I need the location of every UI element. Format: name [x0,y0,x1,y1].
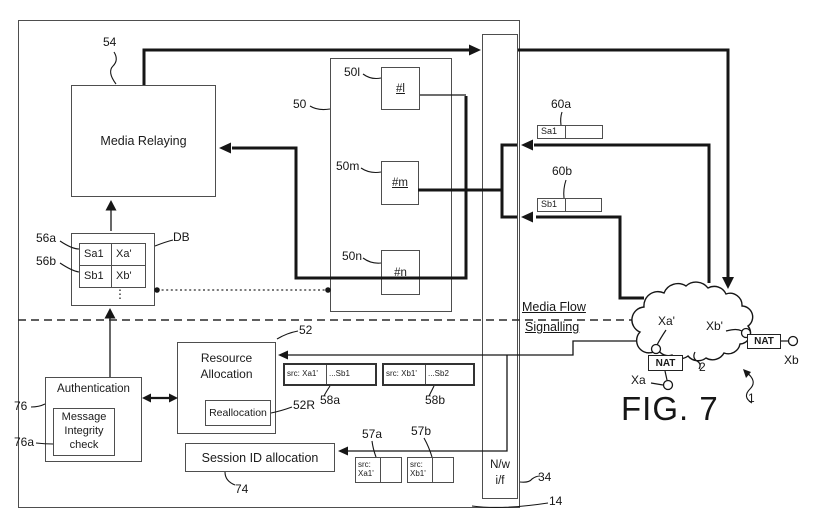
ref-57b: 57b [411,425,431,437]
ref-60b: 60b [552,165,572,177]
packet-60b-payload [566,199,601,211]
nat-a-box: NAT [648,355,683,371]
signalling-plane-label: Signalling [525,321,579,334]
figure-title: FIG. 7 [621,392,719,425]
media-flow-plane-label: Media Flow [522,301,586,314]
ref-2: 2 [699,361,706,373]
ref-76: 76 [14,400,27,412]
socket-l-label: #l [396,83,405,95]
ref-56b: 56b [36,255,56,267]
packet-60a-payload [566,126,602,138]
packet-60b-box: Sb1 [537,198,602,212]
socket-m-label: #m [392,177,408,189]
message-58b-box: src: Xb1' ...Sb2 [382,363,475,386]
ref-58b: 58b [425,394,445,406]
message-57b-src: src: Xb1' [408,458,433,482]
ref-57a: 57a [362,428,382,440]
reallocation-box: Reallocation [205,400,271,426]
db-ellipsis: ⋮ [114,288,126,300]
message-58a-box: src: Xa1' ...Sb1 [283,363,377,386]
reallocation-label: Reallocation [209,407,267,419]
message-57a-box: src: Xa1' [355,457,402,483]
port-xa [664,381,673,390]
nat-a-label: NAT [656,358,676,369]
port-xb [789,337,798,346]
db-cell-sb1: Sb1 [80,266,112,288]
session-id-allocation-label: Session ID allocation [202,451,319,465]
socket-m-box: #m [381,161,419,205]
session-id-allocation-box: Session ID allocation [185,443,335,472]
xb-prime-label: Xb' [706,320,723,332]
socket-n-label: #n [394,267,407,279]
network-interface-label: N/w i/f [482,458,518,489]
message-58b-dst: ...Sb2 [426,365,473,384]
message-integrity-label: Message Integrity check [54,411,114,452]
ref-50m: 50m [336,160,359,172]
ref-60a: 60a [551,98,571,110]
resource-allocation-label: Resource Allocation [178,343,275,382]
ref-14: 14 [549,495,562,507]
db-cell-xb: Xb' [112,266,145,288]
message-57b-box: src: Xb1' [407,457,454,483]
port-xa-prime [652,345,661,354]
network-interface-bar [482,34,518,499]
ref-56a: 56a [36,232,56,244]
patent-figure: N/w i/f Media Relaying #l #m #n Sa1 Xa' … [0,0,830,523]
ref-50: 50 [293,98,306,110]
db-cell-sa1: Sa1 [80,244,112,266]
message-57a-empty [381,458,401,482]
packet-60a-tag: Sa1 [538,126,566,138]
xb-label: Xb [784,354,799,366]
message-57a-src: src: Xa1' [356,458,381,482]
ref-db: DB [173,231,190,243]
ref-52R: 52R [293,399,315,411]
xa-label: Xa [631,374,646,386]
ref-76a: 76a [14,436,34,448]
ref-74: 74 [235,483,248,495]
nw-label-line1: N/w [482,458,518,474]
ref-54: 54 [103,36,116,48]
ref1-arrowhead [743,369,751,378]
xa-prime-label: Xa' [658,315,675,327]
nat-b-box: NAT [747,334,781,349]
ref-52: 52 [299,324,312,336]
packet-60b-tag: Sb1 [538,199,566,211]
socket-l-box: #l [381,67,420,110]
media-relaying-label: Media Relaying [100,134,186,148]
ref-58a: 58a [320,394,340,406]
message-integrity-box: Message Integrity check [53,408,115,456]
message-58b-src: src: Xb1' [384,365,426,384]
socket-n-box: #n [381,250,420,295]
message-58a-dst: ...Sb1 [327,365,375,384]
nat-b-label: NAT [754,336,774,347]
ref-34: 34 [538,471,551,483]
db-cell-xa: Xa' [112,244,145,266]
ref-50n: 50n [342,250,362,262]
authentication-label: Authentication [46,378,141,395]
media-relaying-box: Media Relaying [71,85,216,197]
ref-1: 1 [748,392,755,404]
ref-50l: 50l [344,66,360,78]
nw-label-line2: i/f [482,474,518,490]
message-58a-src: src: Xa1' [285,365,327,384]
db-table: Sa1 Xa' Sb1 Xb' [79,243,146,288]
message-57b-empty [433,458,453,482]
packet-60a-box: Sa1 [537,125,603,139]
